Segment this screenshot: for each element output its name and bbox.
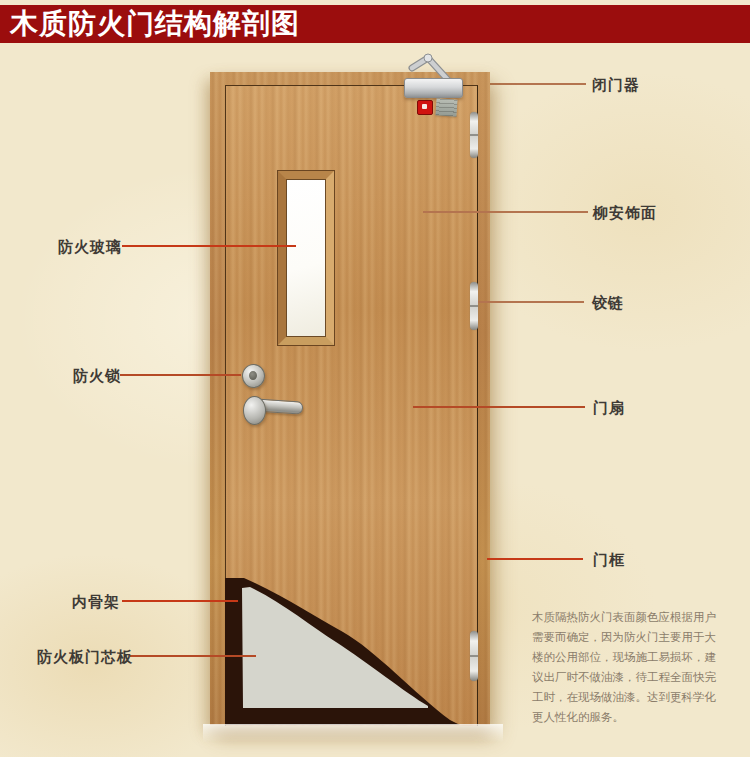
leader-line-lauan-veneer (423, 211, 588, 213)
label-inner-skeleton: 内骨架 (72, 593, 120, 612)
status-indicator-light (417, 100, 433, 115)
hinge-top (470, 112, 478, 158)
door-closer-body (404, 78, 463, 98)
label-fire-board-core: 防火板门芯板 (37, 648, 133, 667)
label-lauan-veneer: 柳安饰面 (593, 204, 657, 223)
label-door-frame: 门框 (593, 551, 625, 570)
hinge-middle (470, 282, 478, 330)
fire-lock-cylinder (242, 364, 265, 388)
product-sticker (435, 98, 457, 116)
handle-rosette (243, 396, 266, 425)
leader-line-door-frame (487, 558, 583, 560)
leader-line-fire-lock (120, 374, 241, 376)
leader-line-fire-board-core (130, 655, 256, 657)
description-note: 木质隔热防火门表面颜色应根据用户需要而确定，因为防火门主要用于大楼的公用部位，现… (532, 607, 720, 727)
label-fire-lock: 防火锁 (73, 367, 121, 386)
floor-glow (203, 724, 503, 742)
leader-line-fire-glass (122, 245, 296, 247)
fire-board-core-cutaway (242, 587, 428, 708)
diagram-canvas: 木质防火门结构解剖图 闭门器 柳安饰面 铰链 门扇 门框 (0, 0, 750, 757)
label-fire-glass: 防火玻璃 (58, 238, 122, 257)
label-door-leaf: 门扇 (593, 399, 625, 418)
page-title: 木质防火门结构解剖图 (0, 5, 750, 43)
leader-line-door-leaf (413, 406, 585, 408)
label-door-closer: 闭门器 (592, 76, 640, 95)
hinge-bottom (470, 631, 478, 681)
leader-line-hinge (478, 301, 584, 303)
leader-line-inner-skeleton (122, 600, 238, 602)
label-hinge: 铰链 (592, 294, 624, 313)
